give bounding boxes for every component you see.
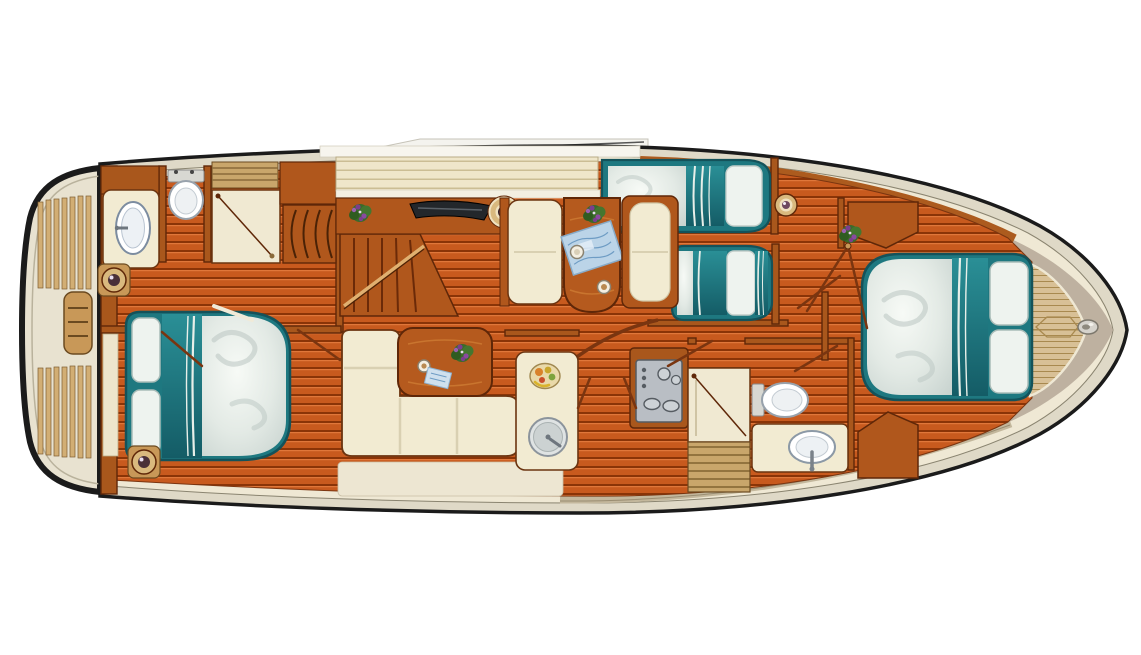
teak-slat-deck-lower xyxy=(38,366,91,458)
coffee-table xyxy=(398,328,492,396)
fwd-corridor-wall xyxy=(822,292,828,360)
sunroof-front-strip xyxy=(336,190,600,198)
cup-1 xyxy=(571,246,584,259)
island-double-bed xyxy=(862,254,1032,400)
shower-cell-2 xyxy=(688,368,750,442)
pillow-top xyxy=(132,318,160,382)
fwd-pillow-top xyxy=(990,262,1028,325)
porthole-left xyxy=(98,264,130,296)
single-bed-lower xyxy=(672,246,772,320)
porthole-right xyxy=(128,446,160,478)
guest-wall-right-1 xyxy=(771,158,778,234)
swim-platform xyxy=(22,168,100,492)
fwd-duvet xyxy=(867,259,952,395)
aft-head-wall-2 xyxy=(204,166,211,262)
toilet-2 xyxy=(752,383,808,417)
bath2-wall-right xyxy=(848,338,854,470)
hanging-wardrobe xyxy=(283,205,336,263)
anchor-roller xyxy=(1078,320,1098,334)
pillow-bottom xyxy=(132,390,160,454)
oval-sink xyxy=(115,202,150,254)
cup-2 xyxy=(598,281,611,294)
sliding-sunroof xyxy=(336,157,598,191)
vanity-counter-2 xyxy=(752,424,848,472)
shower-cell xyxy=(212,190,280,263)
roof-strip xyxy=(320,146,640,157)
teak-slat-deck-upper xyxy=(38,196,91,289)
salon-wall-a xyxy=(505,330,579,336)
fruit-bowl xyxy=(530,364,560,389)
aft-double-bed xyxy=(126,312,290,460)
boat-floor-plan xyxy=(0,0,1141,655)
dinette-bench-right xyxy=(622,196,678,308)
aft-head xyxy=(101,162,336,268)
reading-lamp xyxy=(775,194,797,216)
window-shelf xyxy=(103,334,118,456)
bath2-wall-b xyxy=(745,338,852,344)
fwd-door-hinge xyxy=(845,243,851,249)
galley-round-sink xyxy=(529,418,567,456)
fwd-pillow-bottom xyxy=(990,330,1028,393)
bath2-wall-a xyxy=(688,338,696,344)
boarding-ladder xyxy=(64,292,92,354)
toilet xyxy=(168,170,204,219)
slatted-shelf xyxy=(212,162,278,188)
wardrobe-cabinet-top xyxy=(280,162,336,204)
aft-head-wall-1 xyxy=(159,166,166,262)
teak-grate xyxy=(688,442,750,492)
